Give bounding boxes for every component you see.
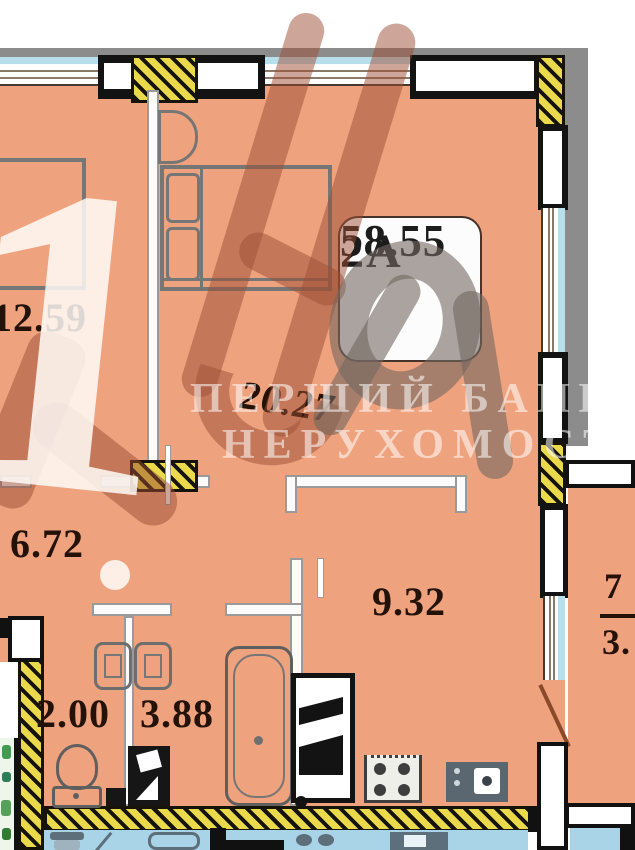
toilet-button — [73, 793, 79, 799]
window-pane — [104, 63, 132, 89]
adjacent-wall-post — [210, 828, 226, 850]
watermark-brand-line2: НЕРУХОМОСТІ — [222, 424, 635, 466]
fridge-wheel — [295, 796, 307, 808]
adjacent-fixture — [2, 745, 11, 759]
stove-burner — [374, 784, 386, 796]
adjacent-toilet-icon — [50, 832, 84, 840]
structural-column-top-right — [536, 55, 565, 127]
stove-burner — [398, 763, 410, 775]
stove-burner — [374, 763, 386, 775]
room-label-wc: 2.00 — [36, 694, 110, 734]
balcony-glazing — [543, 596, 565, 680]
exterior-door-left — [8, 616, 44, 662]
adjacent-sink-icon — [318, 834, 334, 846]
wall-bath-north-a — [92, 603, 172, 616]
floor-plan: 12.59 20.27 6.72 2.00 3.88 9.32 7 3. 2A … — [0, 0, 635, 850]
adjacent-fixture — [2, 772, 11, 782]
window-pane — [198, 63, 258, 89]
adjacent-wall — [226, 840, 284, 850]
kitchen-sink-tap — [454, 780, 460, 786]
party-wall-bottom — [44, 806, 532, 832]
window-top-left — [0, 57, 98, 86]
window-pane — [545, 510, 563, 592]
adjacent-unit-below — [44, 830, 528, 850]
kitchen-sink-tap — [454, 768, 460, 774]
wall-stub-left — [0, 618, 10, 638]
party-wall-left — [18, 638, 44, 850]
watermark-brand-line1: ПЕРШИЙ БАНК — [190, 378, 618, 420]
sink-basin — [104, 654, 122, 678]
sink-basin — [144, 654, 162, 678]
window-pane — [543, 131, 562, 204]
stove-burner — [398, 784, 410, 796]
adjacent-fixture — [1, 800, 11, 816]
balcony-fraction-line — [600, 614, 635, 618]
adjacent-wall-post — [620, 828, 635, 850]
wall-cap — [528, 806, 540, 832]
window-pane — [416, 61, 534, 91]
adjacent-sink-icon — [296, 834, 312, 846]
wall-stub — [455, 475, 467, 513]
adjacent-toilet-icon — [54, 840, 80, 850]
wall-stub — [285, 475, 297, 513]
kitchen-balcony-wall — [537, 742, 568, 850]
bathtub-inner — [233, 654, 285, 798]
adjacent-shower-icon — [148, 832, 200, 850]
room-label-kitchen: 9.32 — [372, 582, 446, 622]
wall-bath-north-b — [225, 603, 303, 616]
stove-icon — [364, 755, 422, 803]
door-leaf-kitchen — [317, 558, 324, 598]
adjacent-fixture — [2, 828, 11, 840]
bed-headboard-line — [200, 169, 203, 287]
wall-living-south — [285, 475, 467, 488]
balcony-south-wall — [565, 803, 635, 828]
adjacent-balcony-below — [570, 828, 620, 850]
balcony-label-reduced: 3. — [602, 624, 631, 660]
room-label-bathroom: 3.88 — [140, 694, 214, 734]
structural-column-top-1 — [131, 55, 198, 103]
party-line-left — [14, 738, 18, 850]
toilet-icon — [56, 744, 98, 790]
glazing-right — [541, 208, 565, 354]
kitchen-sink-drain — [482, 776, 492, 786]
adjacent-stove-icon — [404, 835, 426, 847]
cabinet-icon — [106, 788, 126, 806]
watermark-big-dot — [100, 560, 130, 590]
bathtub-drain — [254, 736, 263, 745]
fridge-icon — [291, 673, 355, 803]
balcony-label-full: 7 — [604, 568, 623, 604]
